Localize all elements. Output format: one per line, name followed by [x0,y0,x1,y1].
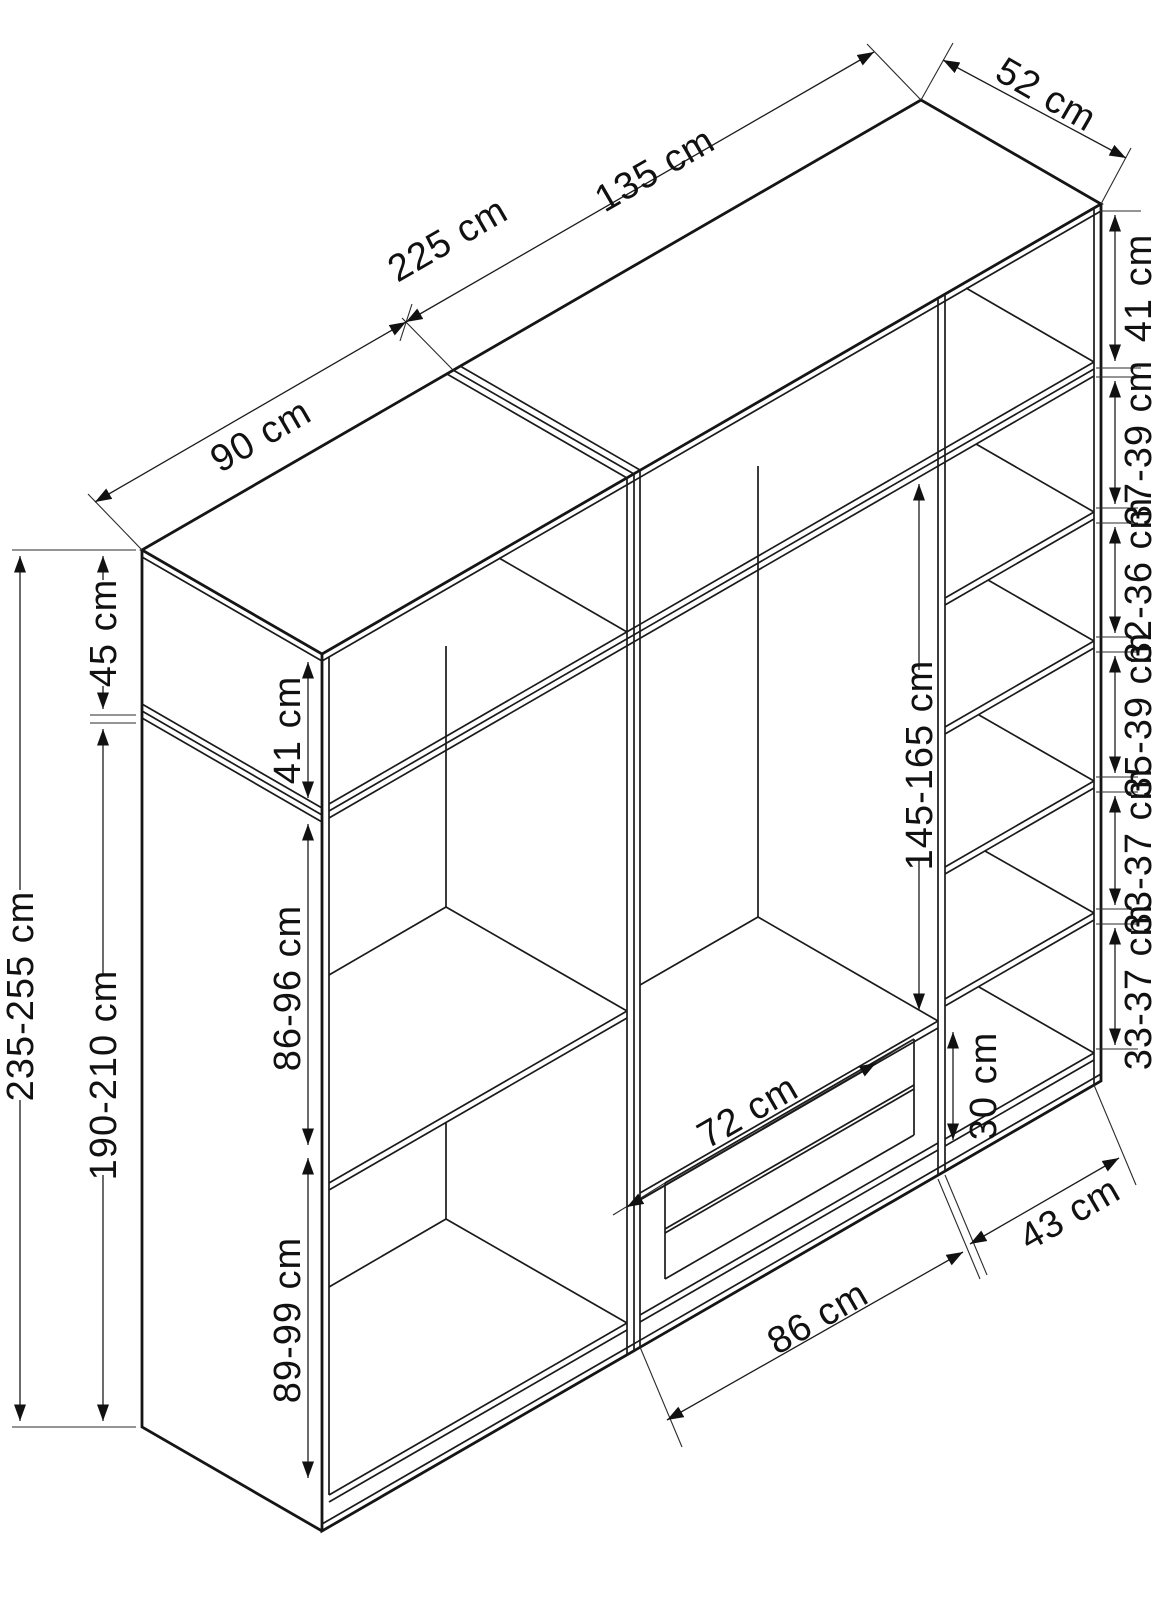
extension-lines [12,43,1141,1447]
dim-label-mid-col-width: 86 cm [761,1273,876,1364]
wardrobe-dimension-diagram: 90 cm 225 cm 135 cm 52 cm 41 cm 37-39 cm… [0,0,1158,1600]
dim-label-body-height: 190-210 cm [83,970,125,1181]
dim-label-total-width: 225 cm [381,189,515,291]
dimension-labels: 90 cm 225 cm 135 cm 52 cm 41 cm 37-39 cm… [0,50,1158,1404]
dim-label-left-upper-section: 86-96 cm [267,905,309,1071]
dim-label-right-section-5: 33-37 cm [1118,904,1158,1070]
diagram-canvas: 90 cm 225 cm 135 cm 52 cm 41 cm 37-39 cm… [0,0,1158,1600]
dimension-lines [20,52,1126,1478]
dim-label-drawer-stack-height: 30 cm [963,1032,1005,1140]
dim-label-left-width: 90 cm [204,391,319,482]
dim-label-right-width: 135 cm [588,119,722,221]
dim-label-total-height: 235-255 cm [0,891,42,1102]
dim-label-left-lower-section: 89-99 cm [267,1237,309,1403]
dim-label-hanging-height: 145-165 cm [899,660,941,871]
dim-label-drawer-width: 72 cm [691,1067,806,1158]
dim-label-topbox-inner-right: 41 cm [1118,234,1158,342]
dim-label-right-col-width: 43 cm [1013,1169,1128,1260]
dim-label-topbox-inner-left: 41 cm [267,676,309,784]
dim-label-depth: 52 cm [989,50,1104,141]
dim-label-topbox-height: 45 cm [83,579,125,687]
